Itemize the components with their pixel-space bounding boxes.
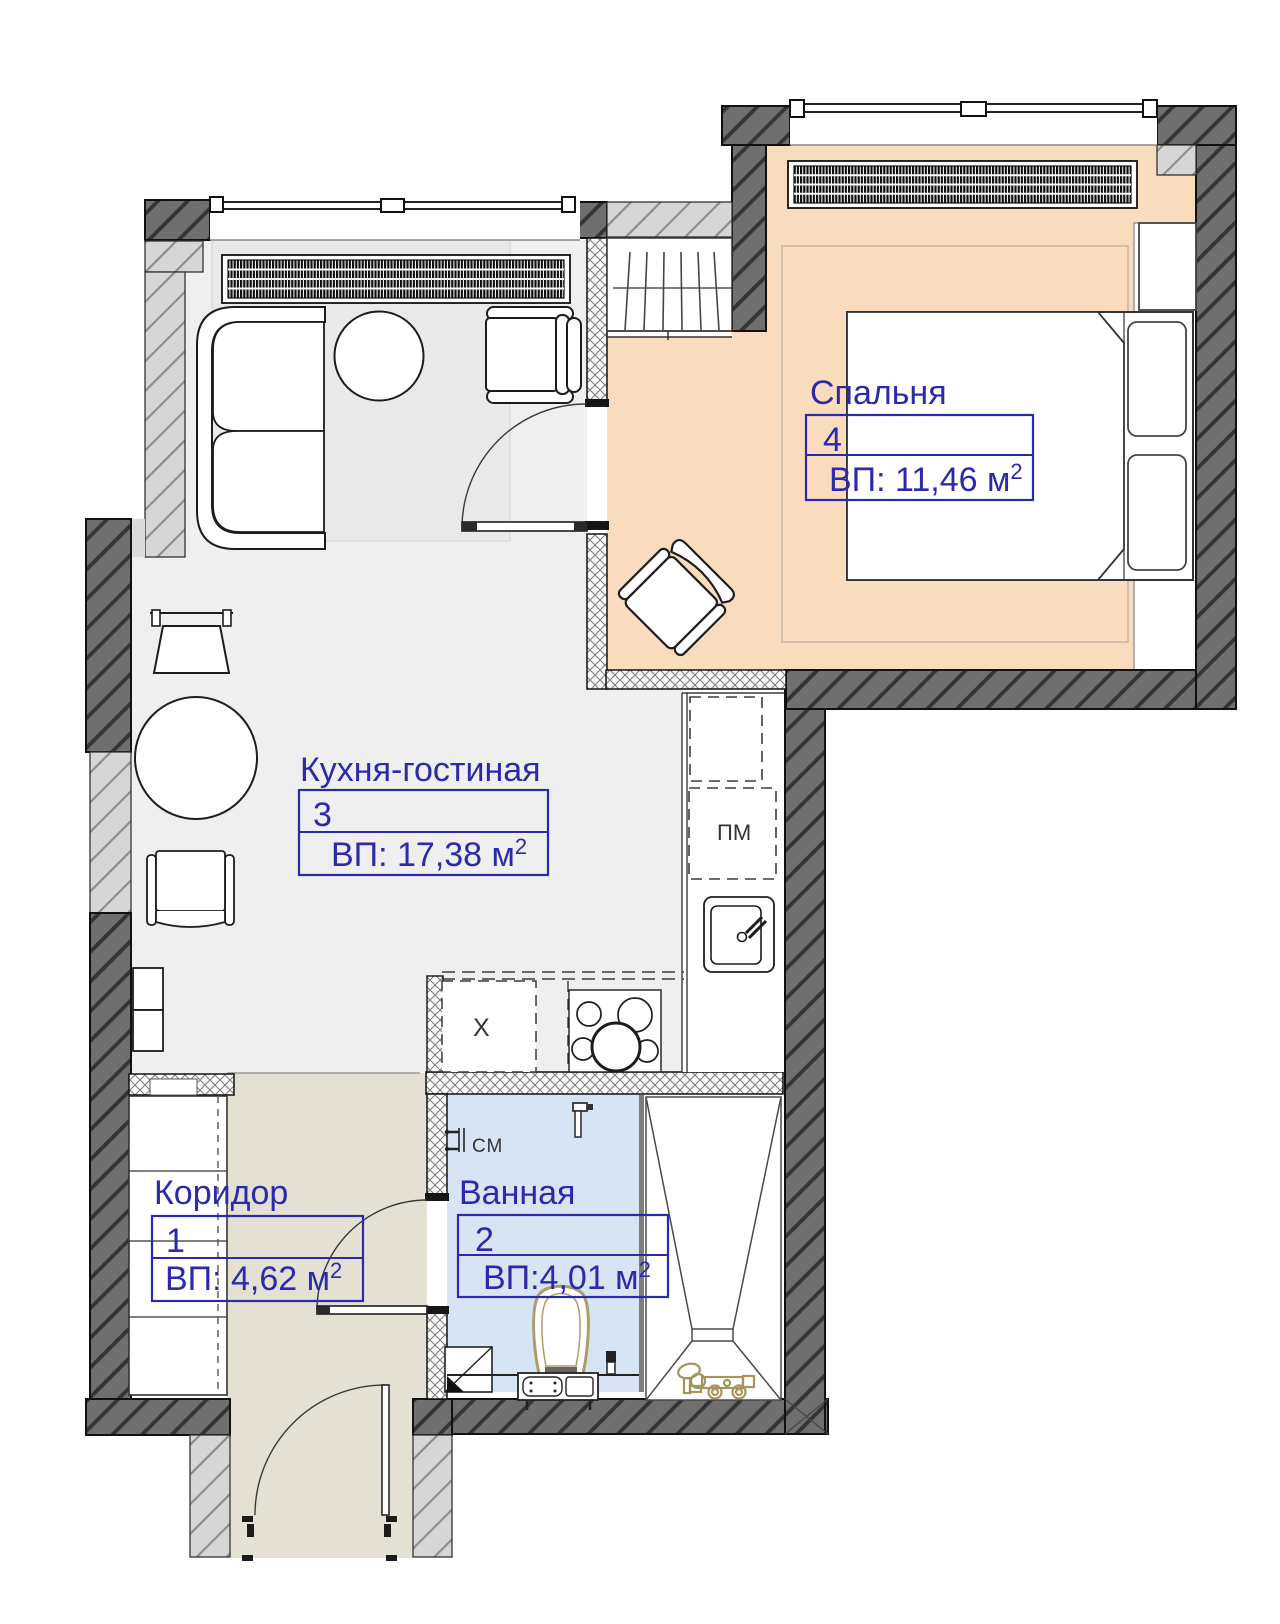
svg-text:Х: Х xyxy=(473,1014,490,1042)
svg-text:2: 2 xyxy=(475,1221,494,1259)
svg-text:ВП: 11,46 м2: ВП: 11,46 м2 xyxy=(829,459,1023,499)
svg-text:Кухня-гостиная: Кухня-гостиная xyxy=(300,751,541,789)
svg-text:1: 1 xyxy=(166,1222,185,1260)
svg-text:4: 4 xyxy=(823,421,842,459)
svg-text:ВП:4,01 м2: ВП:4,01 м2 xyxy=(483,1257,651,1297)
svg-text:3: 3 xyxy=(313,796,332,834)
svg-text:СМ: СМ xyxy=(472,1136,503,1157)
svg-text:ПМ: ПМ xyxy=(717,820,751,845)
svg-text:Коридор: Коридор xyxy=(154,1174,288,1212)
svg-text:Ванная: Ванная xyxy=(459,1174,575,1212)
svg-text:ВП: 17,38 м2: ВП: 17,38 м2 xyxy=(331,834,527,874)
svg-text:Спальня: Спальня xyxy=(810,374,947,412)
svg-text:ВП: 4,62 м2: ВП: 4,62 м2 xyxy=(165,1258,342,1298)
